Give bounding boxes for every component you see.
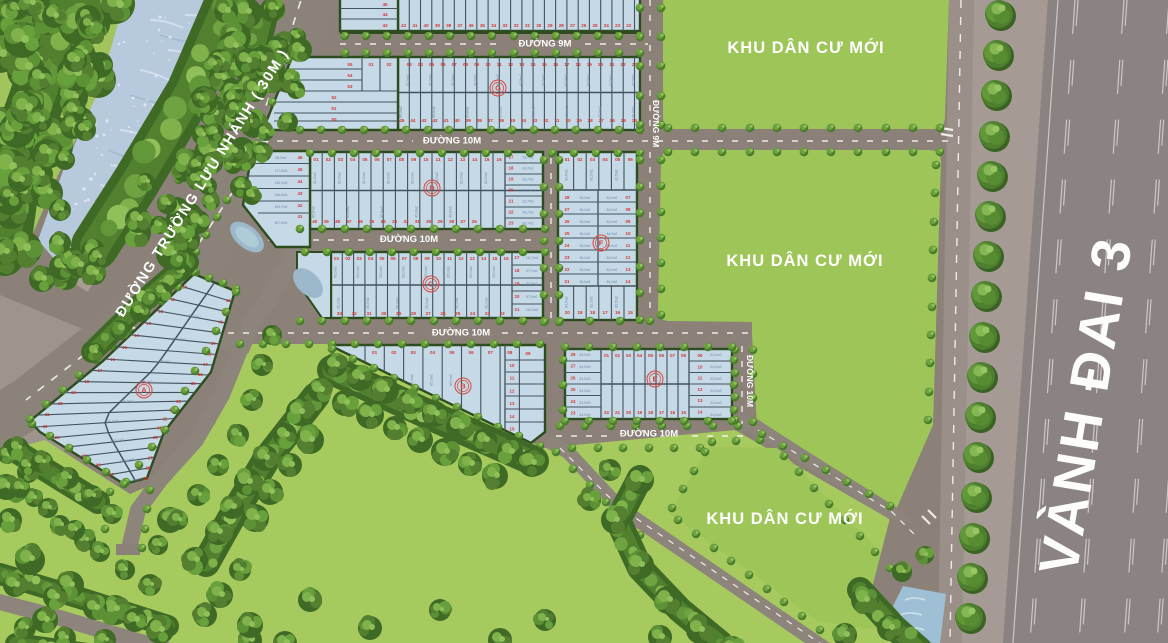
svg-text:04: 04 — [350, 157, 356, 162]
svg-text:07: 07 — [670, 353, 676, 358]
svg-text:27: 27 — [426, 311, 432, 316]
svg-text:06: 06 — [391, 256, 397, 261]
svg-text:F: F — [599, 239, 604, 248]
svg-text:44: 44 — [410, 118, 416, 123]
svg-text:38: 38 — [335, 219, 341, 224]
svg-text:01: 01 — [372, 350, 378, 355]
svg-text:93,7m2: 93,7m2 — [523, 211, 534, 215]
svg-text:41: 41 — [218, 319, 223, 324]
svg-text:39: 39 — [324, 219, 330, 224]
svg-text:11: 11 — [497, 62, 502, 67]
svg-text:82,5m2: 82,5m2 — [484, 172, 488, 183]
svg-text:65,0m2: 65,0m2 — [356, 266, 360, 277]
svg-text:93,7m2: 93,7m2 — [523, 189, 534, 193]
svg-text:21: 21 — [609, 62, 615, 67]
svg-text:31: 31 — [525, 23, 531, 28]
svg-text:09: 09 — [526, 351, 531, 356]
svg-text:85,8m2: 85,8m2 — [380, 206, 384, 217]
svg-text:27: 27 — [565, 207, 570, 212]
svg-text:82,5m2: 82,5m2 — [541, 74, 545, 85]
svg-text:09: 09 — [626, 219, 631, 224]
svg-text:43: 43 — [226, 298, 231, 303]
svg-text:87,9m2: 87,9m2 — [527, 282, 538, 286]
svg-text:41: 41 — [412, 23, 418, 28]
svg-text:KHU DÂN CƯ MỚI: KHU DÂN CƯ MỚI — [706, 509, 863, 528]
svg-text:38: 38 — [477, 118, 483, 123]
svg-text:84,0m2: 84,0m2 — [580, 389, 591, 393]
svg-text:20: 20 — [509, 188, 514, 193]
svg-text:30: 30 — [426, 219, 432, 224]
svg-text:10: 10 — [626, 231, 631, 236]
svg-text:32: 32 — [403, 219, 409, 224]
svg-text:02: 02 — [387, 62, 392, 67]
svg-text:82,5m2: 82,5m2 — [386, 172, 390, 183]
svg-text:21: 21 — [45, 412, 50, 417]
svg-text:22: 22 — [626, 23, 632, 28]
svg-text:10: 10 — [436, 256, 442, 261]
svg-text:65,0m2: 65,0m2 — [469, 266, 473, 277]
svg-text:01: 01 — [604, 353, 610, 358]
svg-text:05: 05 — [449, 350, 455, 355]
svg-text:03: 03 — [338, 157, 344, 162]
svg-text:82,5m2: 82,5m2 — [564, 296, 568, 307]
svg-text:85,8m2: 85,8m2 — [632, 106, 636, 117]
svg-text:15: 15 — [492, 256, 498, 261]
svg-text:65,0m2: 65,0m2 — [449, 374, 453, 385]
svg-text:37: 37 — [203, 362, 208, 367]
svg-text:43: 43 — [382, 23, 388, 28]
svg-text:82,5m2: 82,5m2 — [460, 172, 464, 183]
svg-text:11: 11 — [436, 157, 441, 162]
svg-text:35: 35 — [510, 118, 516, 123]
svg-text:ĐƯỜNG 10M: ĐƯỜNG 10M — [745, 355, 756, 407]
svg-text:25: 25 — [455, 311, 461, 316]
svg-text:82,5m2: 82,5m2 — [564, 169, 568, 180]
svg-text:08: 08 — [681, 353, 687, 358]
svg-text:09: 09 — [698, 353, 703, 358]
svg-text:85,8m2: 85,8m2 — [465, 106, 469, 117]
svg-text:13: 13 — [626, 267, 631, 272]
svg-text:41: 41 — [298, 214, 303, 219]
svg-text:02: 02 — [326, 157, 332, 162]
svg-text:65,0m2: 65,0m2 — [492, 266, 496, 277]
svg-text:26: 26 — [146, 466, 151, 471]
svg-text:65,0m2: 65,0m2 — [455, 297, 459, 308]
svg-text:16: 16 — [497, 157, 503, 162]
svg-text:03: 03 — [411, 350, 417, 355]
svg-text:02: 02 — [345, 256, 351, 261]
svg-text:06: 06 — [375, 157, 381, 162]
svg-text:30: 30 — [536, 23, 542, 28]
svg-text:84,0m2: 84,0m2 — [607, 220, 618, 224]
svg-text:84,0m2: 84,0m2 — [607, 268, 618, 272]
svg-text:82,5m2: 82,5m2 — [474, 74, 478, 85]
svg-text:14: 14 — [134, 333, 139, 338]
svg-text:34: 34 — [491, 23, 497, 28]
svg-text:82,5m2: 82,5m2 — [406, 74, 410, 85]
svg-text:21: 21 — [509, 199, 514, 204]
svg-text:35: 35 — [369, 219, 375, 224]
svg-text:28: 28 — [565, 195, 570, 200]
svg-text:33: 33 — [337, 311, 343, 316]
svg-text:05: 05 — [379, 256, 385, 261]
svg-text:24: 24 — [571, 399, 576, 404]
svg-text:12: 12 — [510, 388, 515, 393]
svg-text:43: 43 — [298, 191, 303, 196]
svg-text:40: 40 — [312, 219, 318, 224]
svg-text:29: 29 — [153, 435, 158, 440]
svg-text:27: 27 — [460, 219, 466, 224]
svg-text:84,0m2: 84,0m2 — [711, 413, 722, 417]
svg-text:09: 09 — [411, 157, 417, 162]
svg-text:01: 01 — [314, 157, 320, 162]
svg-text:04: 04 — [603, 157, 609, 162]
svg-text:40: 40 — [455, 118, 461, 123]
svg-text:110,9m2: 110,9m2 — [526, 308, 539, 312]
svg-text:65,0m2: 65,0m2 — [425, 297, 429, 308]
svg-text:84,0m2: 84,0m2 — [580, 208, 591, 212]
svg-text:110,9m2: 110,9m2 — [526, 256, 539, 260]
svg-text:65,0m2: 65,0m2 — [424, 266, 428, 277]
svg-text:01: 01 — [369, 62, 374, 67]
svg-text:50: 50 — [332, 117, 337, 122]
svg-text:51: 51 — [332, 106, 337, 111]
svg-text:13: 13 — [519, 62, 525, 67]
svg-text:27: 27 — [571, 364, 576, 369]
svg-text:06: 06 — [659, 353, 665, 358]
svg-text:18: 18 — [84, 379, 89, 384]
svg-text:29: 29 — [396, 311, 402, 316]
svg-text:06: 06 — [469, 350, 475, 355]
svg-text:ĐƯỜNG 10M: ĐƯỜNG 10M — [423, 135, 481, 147]
svg-text:11: 11 — [698, 376, 703, 381]
svg-text:31: 31 — [366, 311, 372, 316]
svg-text:135,3m2: 135,3m2 — [275, 181, 288, 185]
svg-text:31: 31 — [415, 219, 421, 224]
svg-text:24: 24 — [565, 243, 570, 248]
svg-text:16: 16 — [110, 357, 115, 362]
svg-text:84,0m2: 84,0m2 — [580, 280, 591, 284]
svg-text:27: 27 — [148, 455, 153, 460]
svg-text:02: 02 — [615, 353, 621, 358]
svg-text:26: 26 — [472, 219, 478, 224]
svg-text:36: 36 — [358, 219, 364, 224]
svg-text:27: 27 — [570, 23, 576, 28]
svg-text:84,0m2: 84,0m2 — [580, 365, 591, 369]
svg-text:B: B — [460, 382, 466, 391]
svg-text:82,5m2: 82,5m2 — [590, 296, 594, 307]
svg-text:E: E — [652, 375, 657, 384]
svg-text:82,5m2: 82,5m2 — [338, 172, 342, 183]
svg-text:KHU DÂN CƯ MỚI: KHU DÂN CƯ MỚI — [726, 251, 883, 270]
svg-text:02: 02 — [577, 157, 583, 162]
svg-text:27: 27 — [599, 118, 605, 123]
svg-text:25: 25 — [143, 476, 148, 481]
svg-text:25: 25 — [621, 118, 627, 123]
svg-text:26: 26 — [581, 23, 587, 28]
svg-text:ĐƯỜNG 10M: ĐƯỜNG 10M — [620, 428, 678, 440]
svg-text:03: 03 — [590, 157, 596, 162]
svg-text:29: 29 — [438, 219, 444, 224]
svg-text:28: 28 — [411, 311, 417, 316]
svg-text:12: 12 — [698, 387, 703, 392]
svg-text:19: 19 — [577, 310, 583, 315]
svg-text:13: 13 — [470, 256, 476, 261]
svg-text:11: 11 — [510, 376, 515, 381]
svg-text:22: 22 — [509, 210, 514, 215]
svg-text:17: 17 — [97, 368, 102, 373]
svg-text:23: 23 — [509, 221, 514, 226]
svg-text:22: 22 — [500, 311, 506, 316]
svg-text:35: 35 — [480, 23, 486, 28]
svg-text:24: 24 — [470, 311, 476, 316]
svg-text:17: 17 — [659, 410, 665, 415]
svg-text:14: 14 — [481, 256, 487, 261]
svg-text:84,0m2: 84,0m2 — [711, 377, 722, 381]
svg-text:23: 23 — [485, 311, 491, 316]
svg-text:37: 37 — [346, 219, 352, 224]
svg-text:18: 18 — [590, 310, 596, 315]
svg-text:32: 32 — [514, 23, 520, 28]
svg-text:06: 06 — [628, 157, 634, 162]
svg-text:16: 16 — [504, 256, 510, 261]
svg-text:52: 52 — [332, 95, 337, 100]
svg-text:17: 17 — [515, 255, 520, 260]
svg-text:15: 15 — [628, 310, 634, 315]
svg-text:65,0m2: 65,0m2 — [447, 266, 451, 277]
svg-text:82,5m2: 82,5m2 — [615, 169, 619, 180]
svg-text:84,0m2: 84,0m2 — [580, 196, 591, 200]
svg-text:32: 32 — [352, 311, 358, 316]
svg-text:82,5m2: 82,5m2 — [451, 74, 455, 85]
svg-text:44: 44 — [298, 179, 303, 184]
svg-text:08: 08 — [507, 350, 513, 355]
svg-text:C: C — [428, 280, 434, 289]
svg-text:44: 44 — [382, 12, 388, 17]
svg-text:D: D — [429, 184, 435, 193]
svg-text:26: 26 — [565, 219, 570, 224]
svg-text:84,0m2: 84,0m2 — [607, 256, 618, 260]
svg-text:09: 09 — [474, 62, 480, 67]
svg-text:16: 16 — [553, 62, 559, 67]
svg-text:22: 22 — [621, 62, 627, 67]
svg-text:82,5m2: 82,5m2 — [429, 74, 433, 85]
svg-text:28: 28 — [449, 219, 455, 224]
svg-text:18: 18 — [648, 410, 654, 415]
svg-text:20: 20 — [565, 310, 571, 315]
svg-text:40: 40 — [424, 23, 430, 28]
svg-text:105,1m2: 105,1m2 — [158, 359, 171, 364]
svg-text:84,0m2: 84,0m2 — [580, 353, 591, 357]
svg-text:07: 07 — [402, 256, 408, 261]
svg-text:84,0m2: 84,0m2 — [711, 389, 722, 393]
svg-text:30: 30 — [565, 118, 571, 123]
svg-text:84,0m2: 84,0m2 — [607, 280, 618, 284]
svg-text:KHU DÂN CƯ MỚI: KHU DÂN CƯ MỚI — [727, 38, 884, 57]
svg-text:117,8m2: 117,8m2 — [275, 169, 288, 173]
svg-text:38: 38 — [446, 23, 452, 28]
svg-text:14: 14 — [530, 62, 536, 67]
svg-text:05: 05 — [362, 157, 368, 162]
svg-text:82,5m2: 82,5m2 — [590, 169, 594, 180]
svg-text:07: 07 — [387, 157, 393, 162]
svg-text:84,0m2: 84,0m2 — [580, 256, 591, 260]
svg-text:26: 26 — [440, 311, 446, 316]
svg-text:82,5m2: 82,5m2 — [586, 74, 590, 85]
svg-text:04: 04 — [637, 353, 643, 358]
svg-text:12: 12 — [626, 255, 631, 260]
svg-text:10: 10 — [510, 363, 515, 368]
svg-text:28: 28 — [559, 23, 565, 28]
svg-text:14: 14 — [698, 410, 703, 415]
svg-text:ĐƯỜNG 10M: ĐƯỜNG 10M — [432, 327, 490, 339]
svg-text:19: 19 — [515, 281, 520, 286]
svg-text:07: 07 — [488, 350, 494, 355]
svg-text:20: 20 — [515, 294, 520, 299]
svg-text:10: 10 — [182, 285, 187, 290]
svg-text:20: 20 — [626, 410, 632, 415]
svg-text:12: 12 — [158, 309, 163, 314]
svg-text:17: 17 — [564, 62, 570, 67]
svg-text:85,8m2: 85,8m2 — [449, 206, 453, 217]
svg-text:13: 13 — [460, 157, 466, 162]
svg-text:08: 08 — [413, 256, 419, 261]
svg-text:26: 26 — [571, 375, 576, 380]
svg-text:85,8m2: 85,8m2 — [598, 106, 602, 117]
svg-text:18: 18 — [576, 62, 582, 67]
svg-text:54: 54 — [348, 73, 353, 78]
svg-text:23: 23 — [55, 435, 60, 440]
svg-text:20: 20 — [58, 401, 63, 406]
svg-text:17: 17 — [603, 310, 609, 315]
svg-text:84,0m2: 84,0m2 — [580, 377, 591, 381]
svg-text:527,8m2: 527,8m2 — [275, 221, 288, 225]
svg-text:03: 03 — [626, 353, 632, 358]
svg-text:65,0m2: 65,0m2 — [379, 266, 383, 277]
svg-text:ĐƯỜNG 9M: ĐƯỜNG 9M — [651, 100, 662, 147]
svg-text:12: 12 — [448, 157, 454, 162]
svg-text:65,0m2: 65,0m2 — [430, 374, 434, 385]
svg-text:14: 14 — [472, 157, 478, 162]
svg-text:ĐƯỜNG 10M: ĐƯỜNG 10M — [380, 233, 438, 245]
svg-text:85,8m2: 85,8m2 — [499, 106, 503, 117]
svg-text:24: 24 — [604, 23, 610, 28]
svg-text:65,0m2: 65,0m2 — [334, 266, 338, 277]
svg-text:45: 45 — [399, 118, 405, 123]
svg-text:15: 15 — [122, 345, 127, 350]
svg-text:01: 01 — [565, 157, 571, 162]
svg-text:25: 25 — [592, 23, 598, 28]
svg-text:21: 21 — [565, 279, 570, 284]
svg-text:84,0m2: 84,0m2 — [607, 196, 618, 200]
svg-text:65,0m2: 65,0m2 — [366, 297, 370, 308]
svg-text:13: 13 — [698, 398, 703, 403]
svg-text:37: 37 — [457, 23, 463, 28]
svg-text:13: 13 — [146, 321, 151, 326]
svg-text:42: 42 — [298, 203, 303, 208]
svg-text:105,1m2: 105,1m2 — [120, 399, 133, 403]
svg-text:32: 32 — [543, 118, 549, 123]
svg-text:03: 03 — [357, 256, 363, 261]
svg-text:43: 43 — [421, 118, 427, 123]
svg-text:21: 21 — [615, 410, 621, 415]
svg-text:85,8m2: 85,8m2 — [565, 106, 569, 117]
svg-text:25: 25 — [571, 387, 576, 392]
svg-text:46: 46 — [298, 155, 303, 160]
svg-text:27: 27 — [110, 472, 115, 477]
svg-text:G: G — [495, 84, 501, 93]
svg-text:35: 35 — [191, 381, 196, 386]
svg-text:82,5m2: 82,5m2 — [615, 296, 619, 307]
svg-text:33: 33 — [176, 399, 181, 404]
svg-text:15: 15 — [510, 427, 515, 432]
svg-text:82,5m2: 82,5m2 — [362, 172, 366, 183]
svg-text:87,9m2: 87,9m2 — [527, 295, 538, 299]
svg-text:A: A — [141, 386, 147, 395]
svg-text:19: 19 — [509, 177, 514, 182]
svg-text:82,5m2: 82,5m2 — [313, 172, 317, 183]
svg-text:82,5m2: 82,5m2 — [631, 74, 635, 85]
svg-text:11: 11 — [626, 243, 631, 248]
svg-text:10: 10 — [423, 157, 429, 162]
svg-text:82,5m2: 82,5m2 — [411, 172, 415, 183]
svg-text:25: 25 — [565, 231, 570, 236]
svg-text:20: 20 — [598, 62, 604, 67]
svg-text:45: 45 — [382, 2, 388, 7]
svg-text:07: 07 — [452, 62, 458, 67]
svg-text:29: 29 — [577, 118, 583, 123]
svg-text:15: 15 — [542, 62, 548, 67]
svg-text:30: 30 — [381, 311, 387, 316]
svg-text:07: 07 — [626, 195, 631, 200]
svg-text:84,0m2: 84,0m2 — [580, 401, 591, 405]
svg-text:146,6m2: 146,6m2 — [275, 193, 288, 197]
svg-text:16: 16 — [615, 310, 621, 315]
svg-text:21: 21 — [515, 307, 520, 312]
svg-text:36: 36 — [499, 118, 505, 123]
svg-text:84,0m2: 84,0m2 — [580, 244, 591, 248]
svg-text:08: 08 — [626, 207, 631, 212]
svg-text:ĐƯỜNG 9M: ĐƯỜNG 9M — [519, 38, 572, 50]
svg-text:36: 36 — [469, 23, 475, 28]
svg-text:42: 42 — [432, 118, 438, 123]
svg-text:14: 14 — [510, 414, 515, 419]
svg-text:26: 26 — [610, 118, 616, 123]
svg-text:05: 05 — [429, 62, 435, 67]
svg-text:13: 13 — [510, 401, 515, 406]
svg-text:84,0m2: 84,0m2 — [580, 268, 591, 272]
svg-text:42: 42 — [401, 23, 407, 28]
svg-text:85,8m2: 85,8m2 — [346, 206, 350, 217]
svg-text:84,0m2: 84,0m2 — [711, 353, 722, 357]
svg-text:84,0m2: 84,0m2 — [580, 220, 591, 224]
svg-text:82,5m2: 82,5m2 — [519, 74, 523, 85]
svg-text:37: 37 — [488, 118, 494, 123]
svg-text:31: 31 — [554, 118, 560, 123]
svg-text:11: 11 — [447, 256, 452, 261]
svg-text:10: 10 — [698, 364, 703, 369]
svg-text:22: 22 — [604, 410, 610, 415]
svg-text:05: 05 — [648, 353, 654, 358]
svg-text:11: 11 — [171, 297, 176, 302]
svg-text:85,8m2: 85,8m2 — [414, 206, 418, 217]
svg-text:29: 29 — [547, 23, 553, 28]
svg-text:28: 28 — [588, 118, 594, 123]
svg-text:01: 01 — [334, 256, 340, 261]
svg-text:84,0m2: 84,0m2 — [711, 401, 722, 405]
svg-text:10: 10 — [485, 62, 491, 67]
svg-text:65,0m2: 65,0m2 — [396, 297, 400, 308]
